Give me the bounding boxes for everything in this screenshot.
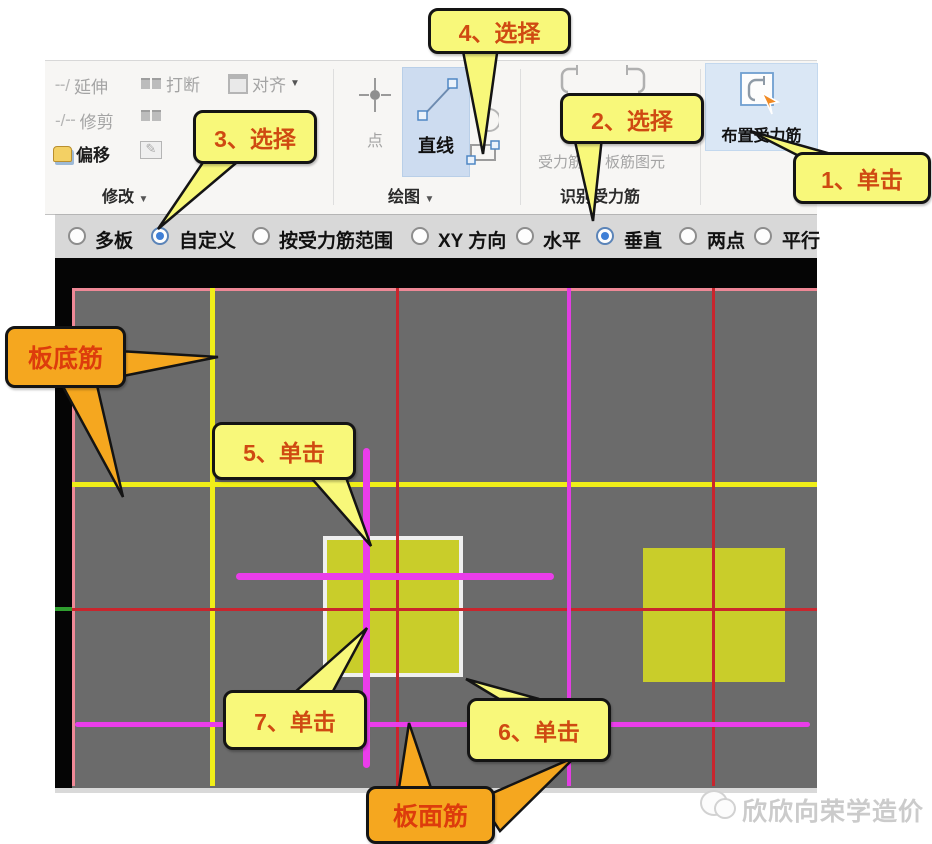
radio-label-two-points[interactable]: 两点 xyxy=(707,226,745,253)
callout-step5: 5、单击 xyxy=(212,422,356,480)
callout-step4: 4、选择 xyxy=(428,8,571,54)
offset-icon xyxy=(53,146,72,162)
ucs-tick xyxy=(55,607,72,611)
extend-icon: ╌/ xyxy=(55,76,70,96)
chevron-down-icon: ▼ xyxy=(138,194,148,205)
callout-step1: 1、单击 xyxy=(793,152,931,204)
sketch-modify-button[interactable]: ✎ xyxy=(140,141,162,159)
watermark-text: 欣欣向荣学造价 xyxy=(742,792,924,828)
selected-slab-square-center[interactable] xyxy=(323,536,463,677)
line-tool-label: 直线 xyxy=(403,132,469,158)
callout-step3: 3、选择 xyxy=(193,110,317,164)
offset-button[interactable]: 偏移 xyxy=(53,141,110,166)
radio-label-vertical[interactable]: 垂直 xyxy=(624,226,662,253)
offset-label: 偏移 xyxy=(76,141,110,166)
chevron-down-icon: ▼ xyxy=(424,194,434,205)
place-rebar-label: 布置受力筋 xyxy=(706,122,817,146)
radio-vertical[interactable] xyxy=(596,227,614,245)
cad-canvas[interactable] xyxy=(55,258,817,788)
bottom-rebar-vertical[interactable] xyxy=(210,288,215,786)
align-button[interactable]: 对齐 ▼ xyxy=(228,71,300,96)
radio-multi-slab[interactable] xyxy=(68,227,86,245)
break-button[interactable]: 打断 xyxy=(140,71,200,96)
radio-label-multi-slab[interactable]: 多板 xyxy=(95,226,133,253)
align-label: 对齐 xyxy=(252,71,286,96)
align-icon xyxy=(228,74,248,94)
bottom-rebar-horizontal[interactable] xyxy=(72,482,817,487)
break-label: 打断 xyxy=(166,71,200,96)
radio-label-rebar-range[interactable]: 按受力筋范围 xyxy=(279,226,393,253)
callout-bottom-rebar: 板底筋 xyxy=(5,326,126,388)
identify-rebar-button[interactable]: 受力筋 xyxy=(538,151,583,172)
draw-group-label[interactable]: 绘图 ▼ xyxy=(388,183,434,207)
callout-top-rebar: 板面筋 xyxy=(366,786,495,844)
line-tool-icon xyxy=(415,76,461,124)
place-rebar-icon xyxy=(736,69,782,115)
callout-step2: 2、选择 xyxy=(560,93,704,144)
break-icon xyxy=(140,74,162,94)
extend-button[interactable]: ╌/ 延伸 xyxy=(55,73,108,98)
identify-group-label[interactable]: 识别受力筋 xyxy=(560,183,640,207)
pencil-icon: ✎ xyxy=(140,141,162,159)
place-rebar-button[interactable]: 布置受力筋 xyxy=(705,63,818,151)
group-divider xyxy=(333,69,334,205)
point-tool-label[interactable]: 点 xyxy=(367,127,383,151)
identify-element-button[interactable]: 板筋图元 xyxy=(605,151,665,172)
top-rebar-horizontal-upper[interactable] xyxy=(236,573,554,580)
radio-label-xy-direction[interactable]: XY 方向 xyxy=(438,226,506,253)
trim-label: 修剪 xyxy=(80,108,114,133)
watermark-logo-icon xyxy=(714,798,736,819)
radio-custom[interactable] xyxy=(151,227,169,245)
radio-rebar-range[interactable] xyxy=(252,227,270,245)
screenshot-root: ╌/ 延伸 打断 对齐 ▼ -/╌ 修剪 偏移 ✎ 修改 ▼ xyxy=(0,0,932,844)
callout-step6: 6、单击 xyxy=(467,698,611,762)
grid-line-horizontal[interactable] xyxy=(72,608,817,611)
top-rebar-horizontal-lower[interactable] xyxy=(75,722,810,727)
radio-label-parallel[interactable]: 平行 xyxy=(782,226,820,253)
grid-line-vertical-1[interactable] xyxy=(396,288,399,786)
group-divider xyxy=(520,69,521,205)
chevron-down-icon: ▼ xyxy=(290,78,300,89)
merge-button[interactable] xyxy=(140,106,162,126)
radio-horizontal[interactable] xyxy=(516,227,534,245)
slab-border-top[interactable] xyxy=(72,288,817,291)
radio-parallel[interactable] xyxy=(754,227,772,245)
trim-icon: -/╌ xyxy=(55,111,76,131)
trim-button[interactable]: -/╌ 修剪 xyxy=(55,108,114,133)
radio-two-points[interactable] xyxy=(679,227,697,245)
merge-icon xyxy=(140,106,162,126)
radio-label-custom[interactable]: 自定义 xyxy=(179,226,236,253)
radio-xy-direction[interactable] xyxy=(411,227,429,245)
point-tool-icon[interactable] xyxy=(357,76,393,114)
line-tool-button[interactable]: 直线 xyxy=(402,67,470,177)
extend-label: 延伸 xyxy=(74,73,108,98)
options-bar: 多板 自定义 按受力筋范围 XY 方向 水平 垂直 两点 平行 xyxy=(55,214,817,259)
circle-tool-icon[interactable] xyxy=(473,106,499,136)
modify-group-label[interactable]: 修改 ▼ xyxy=(102,183,148,207)
rectangle-tool-icon[interactable] xyxy=(465,139,501,167)
watermark: 欣欣向荣学造价 xyxy=(698,786,928,832)
radio-label-horizontal[interactable]: 水平 xyxy=(543,226,581,253)
callout-step7: 7、单击 xyxy=(223,690,367,750)
grid-line-vertical-2[interactable] xyxy=(712,288,715,786)
